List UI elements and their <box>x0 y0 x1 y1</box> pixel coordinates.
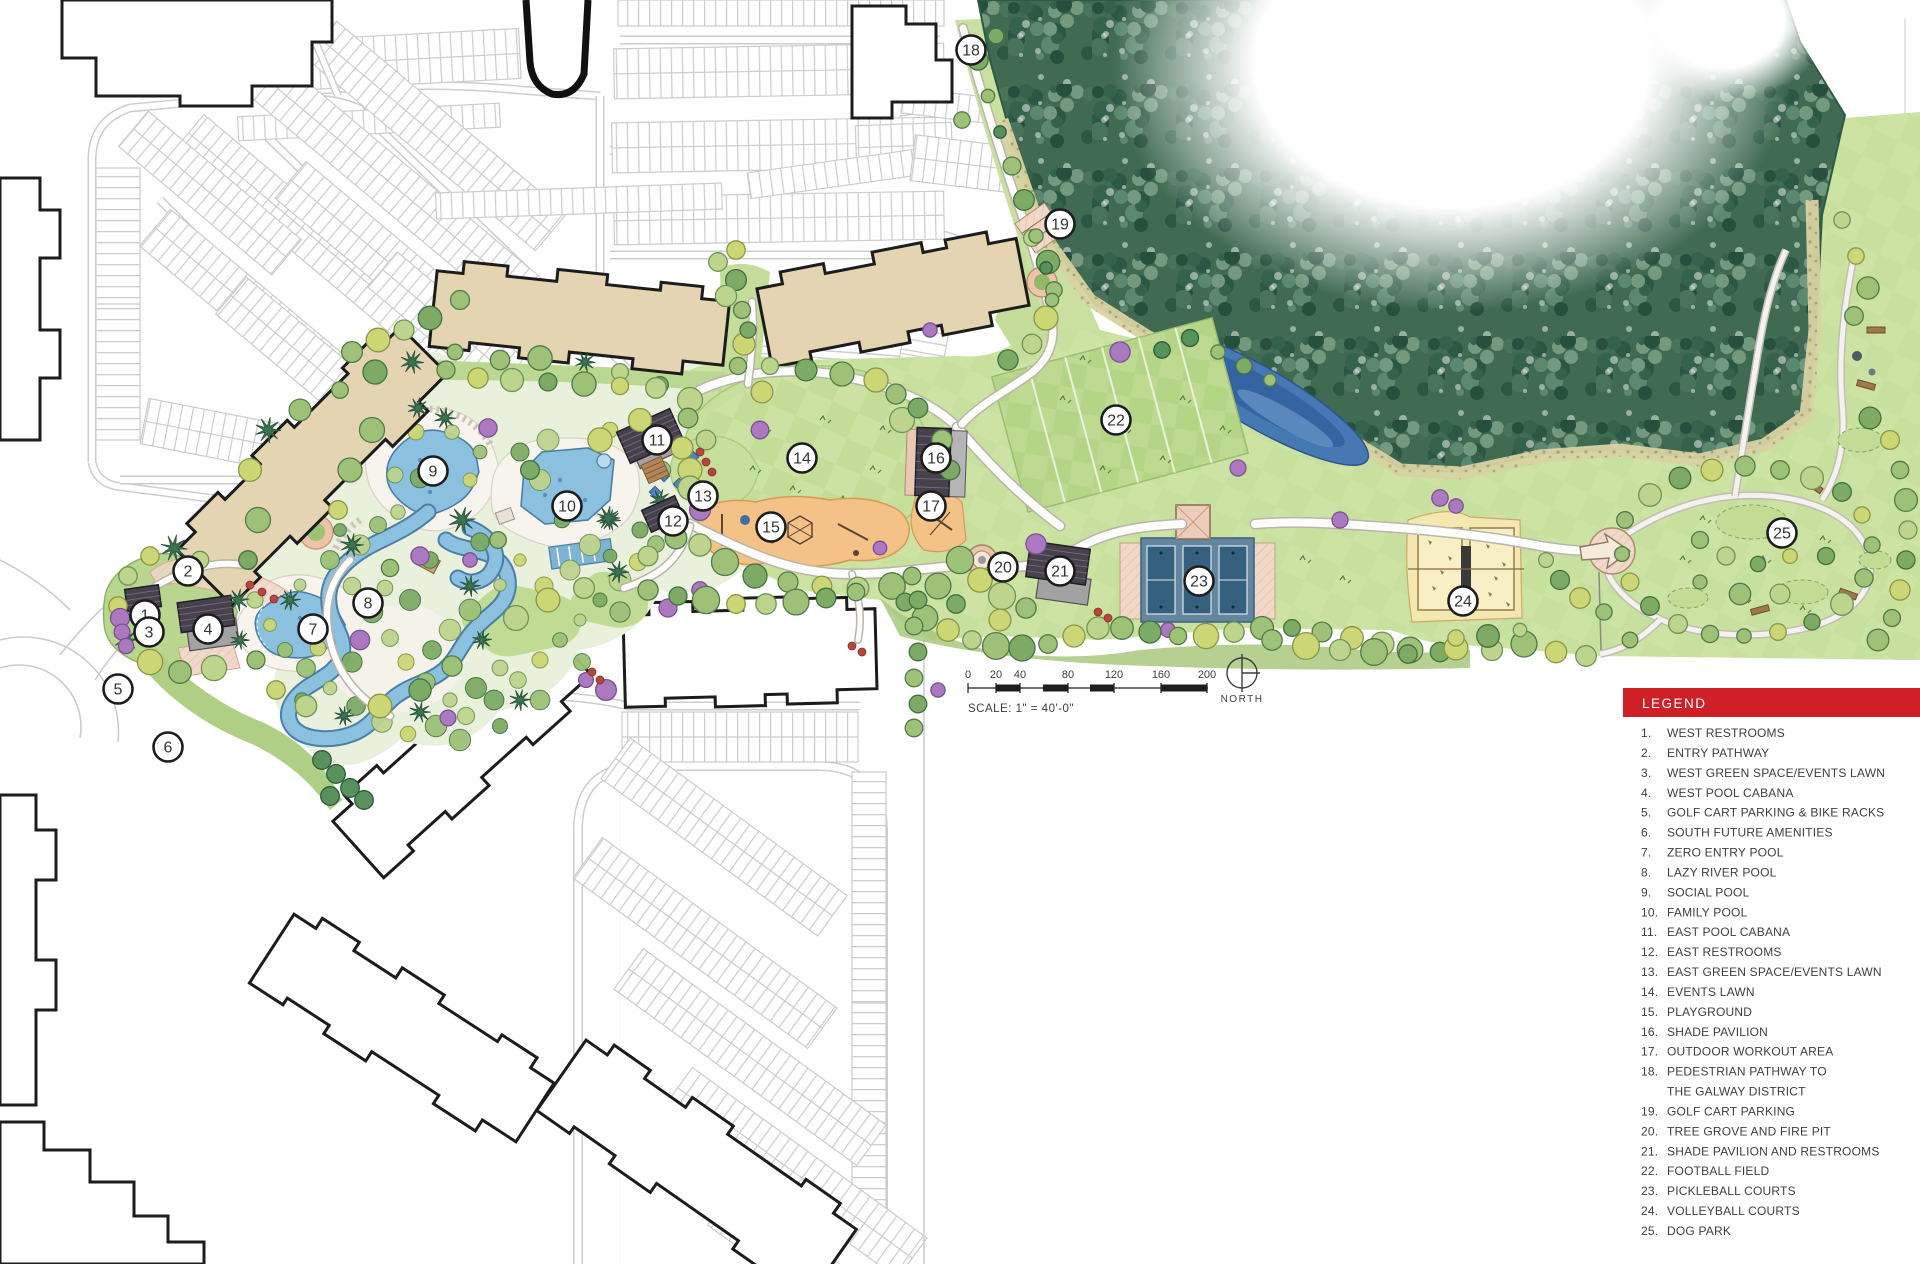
svg-text:SCALE: 1" = 40'-0": SCALE: 1" = 40'-0" <box>968 703 1074 715</box>
svg-text:5: 5 <box>114 682 123 699</box>
svg-text:12: 12 <box>664 514 682 531</box>
svg-text:2.: 2. <box>1641 746 1651 760</box>
svg-text:SOUTH FUTURE AMENITIES: SOUTH FUTURE AMENITIES <box>1667 826 1833 840</box>
svg-text:160: 160 <box>1152 669 1170 681</box>
svg-text:6.: 6. <box>1641 826 1651 840</box>
svg-text:1.: 1. <box>1641 726 1651 740</box>
svg-text:TREE GROVE AND FIRE PIT: TREE GROVE AND FIRE PIT <box>1667 1124 1831 1138</box>
svg-text:THE GALWAY DISTRICT: THE GALWAY DISTRICT <box>1667 1085 1806 1099</box>
svg-text:11: 11 <box>649 433 666 450</box>
svg-text:15.: 15. <box>1641 1005 1658 1019</box>
svg-text:13: 13 <box>694 489 712 506</box>
svg-text:22: 22 <box>1107 413 1125 430</box>
svg-text:WEST POOL CABANA: WEST POOL CABANA <box>1667 786 1794 800</box>
svg-text:17: 17 <box>922 499 940 516</box>
svg-text:120: 120 <box>1105 669 1123 681</box>
svg-text:6: 6 <box>164 740 173 757</box>
svg-text:ZERO ENTRY POOL: ZERO ENTRY POOL <box>1667 846 1784 860</box>
svg-text:OUTDOOR WORKOUT AREA: OUTDOOR WORKOUT AREA <box>1667 1045 1833 1059</box>
svg-text:GOLF CART PARKING: GOLF CART PARKING <box>1667 1105 1795 1119</box>
svg-text:3: 3 <box>145 625 154 642</box>
svg-text:11.: 11. <box>1641 925 1657 939</box>
svg-text:15: 15 <box>762 520 780 537</box>
svg-text:9.: 9. <box>1641 885 1651 899</box>
svg-text:EVENTS LAWN: EVENTS LAWN <box>1667 985 1755 999</box>
svg-text:19.: 19. <box>1641 1105 1658 1119</box>
svg-text:13.: 13. <box>1641 965 1658 979</box>
svg-text:ENTRY PATHWAY: ENTRY PATHWAY <box>1667 746 1769 760</box>
svg-text:16.: 16. <box>1641 1025 1658 1039</box>
svg-text:4: 4 <box>204 622 213 639</box>
svg-text:23.: 23. <box>1641 1184 1658 1198</box>
svg-text:80: 80 <box>1062 669 1074 681</box>
svg-text:200: 200 <box>1198 669 1216 681</box>
svg-text:25.: 25. <box>1641 1224 1658 1238</box>
svg-text:22.: 22. <box>1641 1164 1658 1178</box>
svg-text:40: 40 <box>1014 669 1026 681</box>
svg-text:7.: 7. <box>1641 846 1651 860</box>
svg-text:14: 14 <box>793 451 811 468</box>
svg-text:PICKLEBALL COURTS: PICKLEBALL COURTS <box>1667 1184 1796 1198</box>
svg-text:21.: 21. <box>1641 1144 1658 1158</box>
svg-text:8.: 8. <box>1641 865 1651 879</box>
svg-text:16: 16 <box>927 451 945 468</box>
svg-text:PLAYGROUND: PLAYGROUND <box>1667 1005 1752 1019</box>
svg-text:24: 24 <box>1454 594 1472 611</box>
svg-text:20: 20 <box>994 560 1012 577</box>
svg-text:2: 2 <box>184 564 193 581</box>
svg-text:5.: 5. <box>1641 806 1651 820</box>
svg-text:17.: 17. <box>1641 1045 1658 1059</box>
svg-text:NORTH: NORTH <box>1221 694 1264 705</box>
svg-text:SHADE PAVILION: SHADE PAVILION <box>1667 1025 1768 1039</box>
svg-text:4.: 4. <box>1641 786 1651 800</box>
svg-text:18: 18 <box>962 43 980 60</box>
svg-text:PEDESTRIAN PATHWAY TO: PEDESTRIAN PATHWAY TO <box>1667 1065 1827 1079</box>
svg-text:12.: 12. <box>1641 945 1658 959</box>
svg-text:23: 23 <box>1190 574 1208 591</box>
svg-text:LAZY RIVER POOL: LAZY RIVER POOL <box>1667 865 1777 879</box>
svg-text:24.: 24. <box>1641 1204 1658 1218</box>
svg-text:9: 9 <box>429 464 438 481</box>
svg-text:19: 19 <box>1051 217 1069 234</box>
svg-text:WEST GREEN SPACE/EVENTS LAWN: WEST GREEN SPACE/EVENTS LAWN <box>1667 766 1885 780</box>
svg-text:EAST RESTROOMS: EAST RESTROOMS <box>1667 945 1782 959</box>
svg-text:WEST RESTROOMS: WEST RESTROOMS <box>1667 726 1785 740</box>
svg-text:10: 10 <box>558 499 576 516</box>
svg-text:SHADE PAVILION AND RESTROOMS: SHADE PAVILION AND RESTROOMS <box>1667 1144 1880 1158</box>
svg-text:EAST GREEN SPACE/EVENTS LAWN: EAST GREEN SPACE/EVENTS LAWN <box>1667 965 1882 979</box>
svg-text:18.: 18. <box>1641 1065 1658 1079</box>
svg-text:GOLF CART PARKING & BIKE RACKS: GOLF CART PARKING & BIKE RACKS <box>1667 806 1884 820</box>
svg-text:21: 21 <box>1051 564 1069 581</box>
svg-text:7: 7 <box>309 622 318 639</box>
svg-text:3.: 3. <box>1641 766 1651 780</box>
svg-text:10.: 10. <box>1641 905 1658 919</box>
svg-text:VOLLEYBALL COURTS: VOLLEYBALL COURTS <box>1667 1204 1800 1218</box>
svg-text:14.: 14. <box>1641 985 1658 999</box>
svg-text:20: 20 <box>990 669 1002 681</box>
svg-text:DOG PARK: DOG PARK <box>1667 1224 1731 1238</box>
svg-text:LEGEND: LEGEND <box>1642 696 1707 711</box>
svg-text:FOOTBALL FIELD: FOOTBALL FIELD <box>1667 1164 1770 1178</box>
svg-text:EAST POOL CABANA: EAST POOL CABANA <box>1667 925 1790 939</box>
svg-text:8: 8 <box>364 596 373 613</box>
svg-text:SOCIAL POOL: SOCIAL POOL <box>1667 885 1750 899</box>
svg-text:FAMILY POOL: FAMILY POOL <box>1667 905 1748 919</box>
svg-text:0: 0 <box>965 669 971 681</box>
svg-text:25: 25 <box>1773 526 1791 543</box>
svg-text:20.: 20. <box>1641 1124 1658 1138</box>
